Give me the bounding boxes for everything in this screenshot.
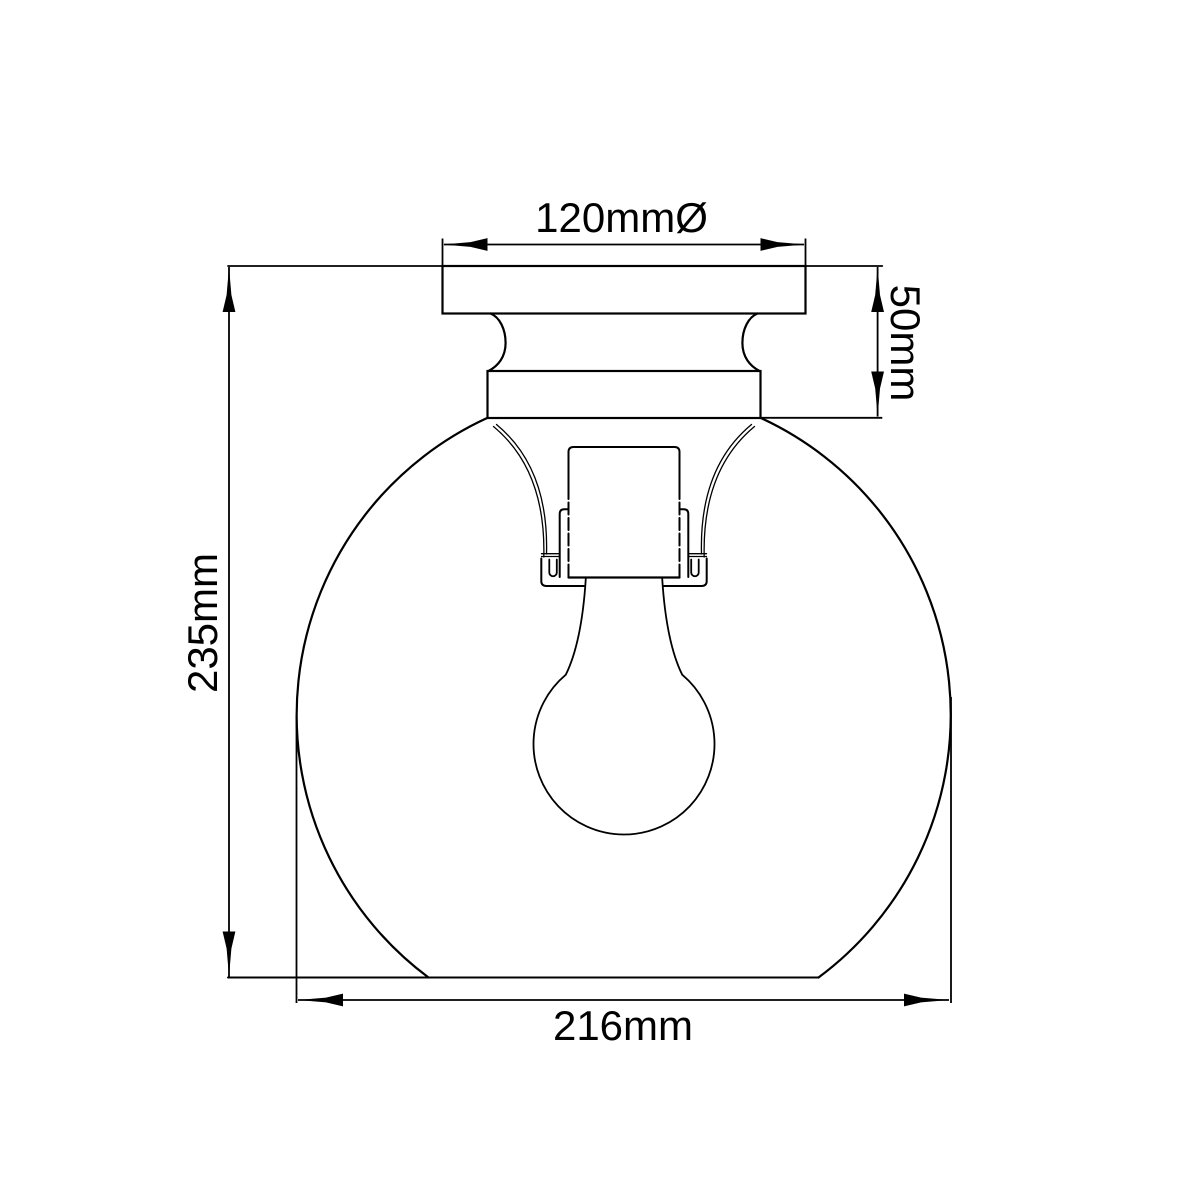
svg-text:50mm: 50mm xyxy=(882,285,929,402)
svg-text:120mmØ: 120mmØ xyxy=(535,194,708,241)
svg-text:235mm: 235mm xyxy=(179,553,226,693)
svg-text:216mm: 216mm xyxy=(553,1002,693,1049)
